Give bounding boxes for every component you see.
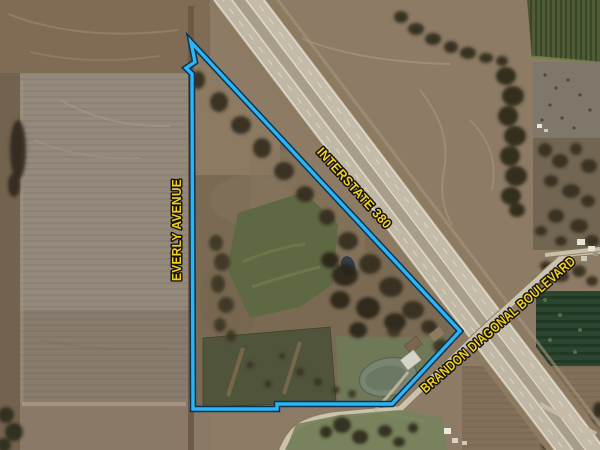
aerial-map-view: EVERLY AVENUE INTERSTATE 380 BRANDON DIA… [0, 0, 600, 450]
aerial-map-canvas: EVERLY AVENUE INTERSTATE 380 BRANDON DIA… [0, 0, 600, 450]
basemap-ground [0, 0, 600, 450]
